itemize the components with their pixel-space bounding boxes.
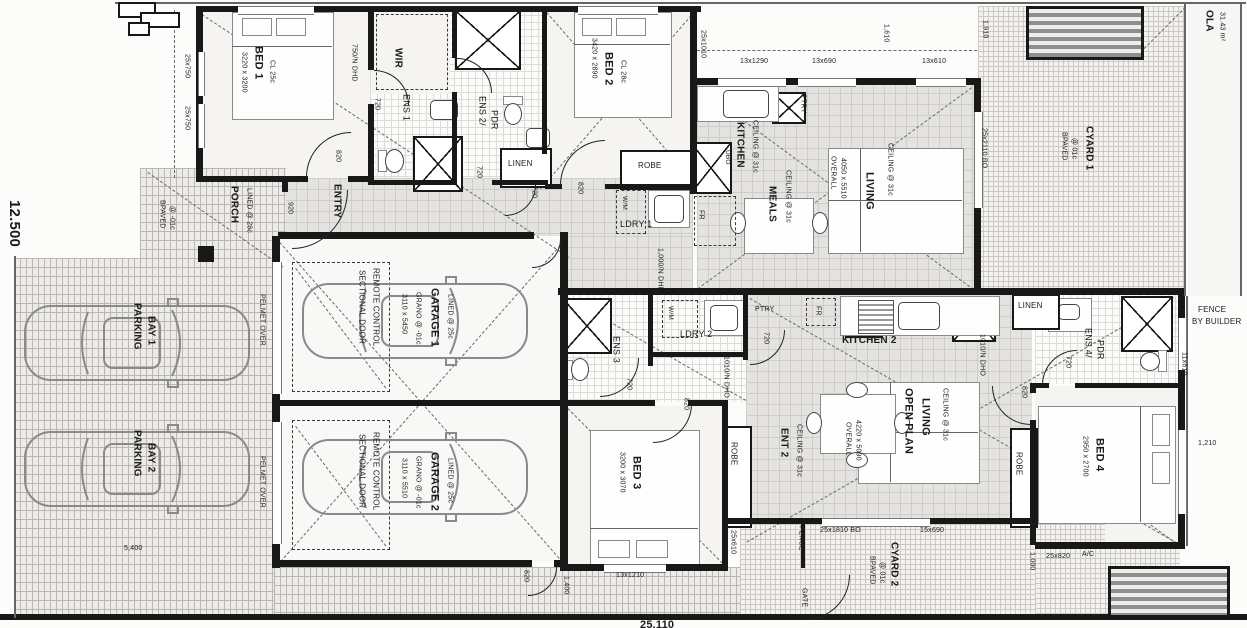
pillow: [616, 18, 646, 36]
robe-label: ROBE: [1014, 452, 1022, 475]
wall: [653, 352, 746, 357]
ceiling-note: CEILING @ 31c: [784, 170, 791, 223]
pelmet-note: PELMET OVER: [258, 456, 265, 508]
room-label-ens4: PDR: [1095, 340, 1104, 360]
ceiling-note: CL 28c: [619, 60, 626, 83]
wm-label: W/M: [620, 196, 627, 210]
louvre-screen-cyard1: [1026, 6, 1144, 60]
ceiling-note: CEILING @ 31c: [941, 388, 948, 441]
wall: [688, 400, 728, 406]
robe-label: ROBE: [638, 162, 661, 170]
wall: [722, 400, 728, 566]
wall: [272, 394, 280, 422]
room-label-ent2: ENT 2: [778, 428, 789, 457]
wall: [272, 236, 280, 262]
room-label-linen1: LINEN: [508, 160, 533, 168]
toilet-ens3: [571, 358, 589, 381]
kitchen2-sink: [898, 302, 940, 330]
paving-note: BPAVED: [1060, 132, 1067, 161]
opening-note: 750/N DHD: [350, 44, 357, 82]
room-size-bed2: 3420 x 2890: [590, 38, 597, 79]
door-dim: 720: [762, 332, 769, 344]
pillow: [598, 540, 630, 558]
door-dim: 720: [530, 186, 537, 198]
wall: [368, 6, 374, 70]
window-dim: 13x1210: [616, 572, 644, 579]
ola-title: OLA: [1203, 10, 1214, 32]
wall: [452, 6, 457, 58]
site-boundary-left: [14, 256, 16, 618]
garage-door-note: SECTIONAL DOOR: [357, 270, 365, 344]
blanket-line: [590, 528, 698, 529]
parking-bay2-label: BAY 2: [145, 443, 156, 472]
room-label-ens1: ENS 1: [401, 94, 410, 121]
garage-door-note: REMOTE CONTROL: [371, 268, 379, 346]
toilet-ens2: [504, 103, 522, 125]
door-dim: 920: [286, 202, 293, 214]
eave-line: [697, 50, 977, 51]
chair: [812, 212, 828, 234]
room-label-meals: MEALS: [766, 186, 777, 222]
dim: 1,210: [1198, 440, 1217, 447]
opening-note: 1010/N DHO: [722, 356, 729, 398]
room-label-porch: PORCH: [228, 186, 239, 223]
window-dim: 13x690: [812, 58, 836, 65]
porch-lining-note: LINED @ 28c: [245, 188, 252, 233]
fence-note: FENCE: [1198, 306, 1226, 314]
window-dim: 25x750: [183, 54, 190, 78]
window-bed2-top: [578, 6, 658, 15]
wall: [565, 400, 655, 406]
wall: [196, 176, 308, 182]
dim: 5,400: [124, 545, 143, 552]
door-dim: 720: [1064, 356, 1071, 368]
room-size-garage2: 3110 x 5510: [400, 458, 407, 498]
fridge-label: FR: [697, 210, 704, 220]
window-living: [916, 78, 966, 87]
louvre-screen-cyard2: [1108, 566, 1230, 618]
room-size-bed4: 2950 x 2700: [1081, 436, 1088, 477]
dim: 1,910: [981, 20, 988, 39]
room-label-bed2: BED 2: [602, 52, 614, 85]
site-boundary-bottom: [0, 614, 1247, 620]
door-dim: 720: [475, 166, 482, 178]
window-dim: 25x750: [183, 106, 190, 130]
window-dim: 15x690: [920, 527, 944, 534]
ceiling-note: CEILING @ 31c: [886, 143, 893, 196]
parking-bay1-label: PARKING: [131, 303, 142, 350]
window-meals: [798, 78, 856, 87]
dishwasher: [858, 300, 894, 334]
wall: [560, 564, 604, 571]
site-width-dim: 12.500: [6, 200, 22, 247]
window-kitchen: [718, 78, 786, 87]
door-dim: 820: [334, 150, 341, 162]
window-bed1-b: [198, 104, 205, 148]
door-dim: 820: [1020, 386, 1027, 398]
pelmet-note: PELMET OVER: [258, 294, 265, 346]
fence-note: BY BUILDER: [1192, 318, 1241, 326]
opening-note: 1010/N DHO: [978, 334, 985, 376]
robe-label: ROBE: [729, 442, 737, 465]
sofa-line: [828, 200, 962, 201]
sofa-living1: [828, 148, 964, 254]
room-label-bed3: BED 3: [630, 456, 642, 489]
garage1-sectional-door: [272, 262, 282, 394]
paving-note: BPAVED: [868, 556, 875, 585]
fridge-space1: [694, 196, 736, 246]
porch-pier: [198, 246, 214, 262]
garage-door-note: SECTIONAL DOOR: [357, 434, 365, 508]
dim: 1,000: [1028, 552, 1035, 571]
wall: [743, 292, 748, 360]
dim: 1,400: [562, 576, 569, 595]
wall: [728, 518, 823, 524]
fridge-label: FR: [814, 306, 821, 316]
window-dim: 13x1290: [740, 58, 768, 65]
chair: [846, 382, 868, 398]
wm-label: W/M: [666, 306, 673, 320]
opening-note: 1,000/N DHD: [656, 248, 663, 292]
blanket-line: [1140, 406, 1141, 522]
shower-ens3: [562, 298, 612, 354]
wall: [282, 176, 288, 192]
toilet-ens1: [385, 149, 404, 173]
wall: [368, 104, 374, 184]
room-size-garage1: 3110 x 5450: [400, 294, 407, 334]
garage-door-note: REMOTE CONTROL: [371, 432, 379, 510]
linen2-cupboard: [1012, 294, 1060, 330]
room-label-wir: WIR: [392, 48, 403, 68]
site-length-dim: 25.110: [640, 620, 674, 628]
pillow: [242, 18, 272, 36]
room-label-ldry1: LDRY 1: [620, 220, 652, 229]
ac-label: A/C: [1082, 551, 1094, 558]
paving-note: @ 01c: [878, 562, 885, 583]
window-dim: 25x1010: [699, 30, 706, 58]
room-label-garage2: GARAGE 2: [428, 452, 440, 511]
ola-area: 31.43 m²: [1218, 12, 1225, 41]
floor-note: GRANO @ -01c: [414, 456, 421, 509]
room-label-garage1: GARAGE 1: [428, 288, 440, 347]
floor-ola-strip: [1188, 4, 1240, 296]
ceiling-note: CEILING @ 31c: [751, 120, 758, 173]
pillow: [582, 18, 612, 36]
blanket-line: [232, 46, 332, 47]
window-dim: 25x820: [1046, 553, 1070, 560]
parking-bay1-label: BAY 1: [145, 316, 156, 345]
cupboard-label: UBO: [723, 150, 730, 165]
blanket-line: [574, 44, 670, 45]
room-label-openplan: OPEN PLAN: [902, 388, 914, 454]
wall: [278, 400, 568, 406]
room-label-entry: ENTRY: [331, 184, 342, 219]
floor-ldry-zone: [560, 236, 693, 292]
meals-table: [744, 198, 814, 254]
room-label-kitchen2: KITCHEN 2: [842, 336, 897, 347]
room-label-living1: LIVING: [863, 172, 875, 210]
room-label-ens2: ENS 2/: [477, 96, 486, 126]
wall: [690, 6, 697, 192]
wall: [368, 180, 456, 185]
wall: [605, 184, 695, 189]
overall-note: OVERALL: [829, 156, 836, 190]
wall: [1035, 542, 1185, 549]
room-label-ldry2: LDRY 2: [680, 330, 712, 339]
wall: [560, 232, 568, 239]
room-label-openplan: LIVING: [919, 398, 931, 436]
door-dim: 820: [522, 570, 529, 582]
kitchen1-sink: [723, 90, 769, 118]
door-dim: 25x2110 BO: [980, 128, 987, 168]
door-dim: 720: [625, 378, 632, 390]
pillow: [1152, 452, 1170, 484]
gate-label: GATE: [800, 588, 807, 607]
garage2-sectional-door: [272, 422, 282, 544]
lining-note: LINED @ 25c: [446, 458, 453, 503]
pantry-label: PTRY: [799, 94, 806, 113]
overall-note: OVERALL: [844, 422, 851, 456]
room-label-linen2: LINEN: [1018, 302, 1043, 310]
site-step: [128, 22, 150, 36]
paving-note: @ 01c: [1070, 138, 1077, 159]
ceiling-note: CEILING @ 31c: [795, 424, 802, 477]
room-label-bed1: BED 1: [252, 46, 264, 79]
boundary-line: [1184, 4, 1186, 296]
window-dim: 25x610: [729, 530, 736, 554]
wall: [452, 92, 457, 184]
room-label-cyard2: CYARD 2: [888, 542, 899, 586]
pantry-label: PTRY: [755, 306, 774, 313]
tub-bowl: [710, 305, 738, 331]
window-bed1-top: [238, 6, 314, 15]
room-label-ens4: ENS 4/: [1083, 328, 1092, 358]
toilet-ens4: [1140, 352, 1160, 371]
room-label-kitchen1: KITCHEN: [734, 122, 745, 168]
door-dim: 720: [373, 98, 380, 110]
pillow: [1152, 414, 1170, 446]
parking-bay2-label: PARKING: [131, 430, 142, 477]
room-size-bed1: 3220 x 3200: [240, 52, 247, 93]
floor-plan: 12.500 25x750 25x750 25x1010 13x1290 13x…: [0, 0, 1247, 628]
floor-note: GRANO @ -01c: [414, 292, 421, 345]
chair: [806, 412, 822, 434]
wall: [930, 518, 1036, 524]
wall: [542, 6, 547, 154]
paving-note: BPAVED: [158, 200, 165, 229]
tub-bowl: [654, 195, 684, 223]
window-dim: 13x610: [922, 58, 946, 65]
sliding-door-cyard2: [822, 518, 930, 527]
room-size-living1: 4050 x 5510: [839, 158, 846, 199]
room-size-openplan: 4220 x 5090: [854, 420, 861, 461]
wall: [1030, 420, 1036, 545]
room-label-ens3: ENS 3: [611, 336, 620, 363]
door-dim: 25x1810 BO: [820, 527, 861, 534]
ceiling-note: CL 25c: [268, 60, 275, 83]
door-dim: 820: [576, 182, 583, 194]
dim: 1,610: [882, 24, 889, 43]
window-bed1-a: [198, 52, 205, 96]
window-dim: 11x610: [1180, 352, 1187, 376]
door-dim: 820: [682, 398, 689, 410]
lining-note: LINED @ 25c: [446, 294, 453, 339]
wall: [666, 564, 728, 571]
shower-ens4: [1121, 296, 1173, 352]
fence-label: FENCE: [797, 526, 804, 551]
boundary-line: [1240, 4, 1242, 296]
pillow: [276, 18, 306, 36]
window-bed4: [1178, 430, 1187, 514]
site-boundary-top: [115, 2, 1246, 4]
basin-ens4: [1058, 304, 1080, 320]
paving-note: @ -01c: [168, 206, 175, 230]
wall: [278, 560, 532, 567]
pillow: [636, 540, 668, 558]
wall: [1075, 383, 1184, 388]
room-label-ens2: PDR: [489, 110, 498, 130]
room-label-cyard1: CYARD 1: [1083, 126, 1094, 170]
room-size-bed3: 3200 x 3070: [618, 452, 625, 493]
eave-line: [174, 10, 175, 178]
room-label-bed4: BED 4: [1093, 438, 1105, 471]
